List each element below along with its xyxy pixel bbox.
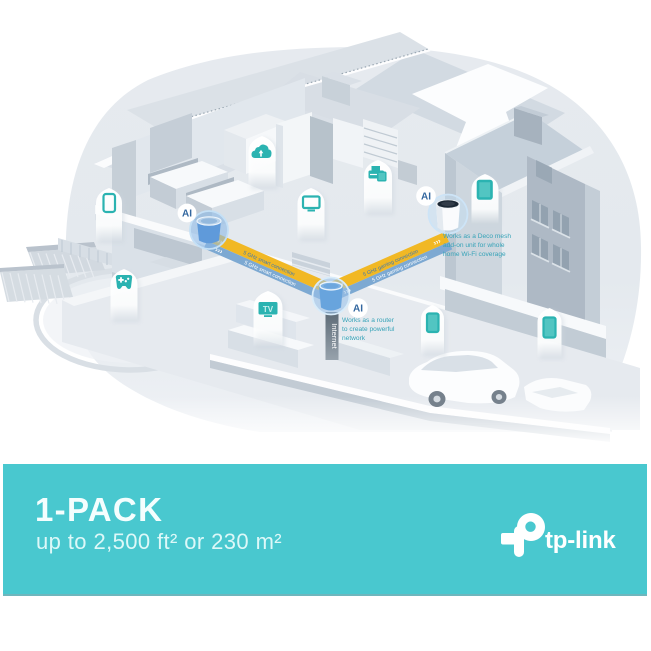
- svg-text:tp-link: tp-link: [545, 527, 616, 554]
